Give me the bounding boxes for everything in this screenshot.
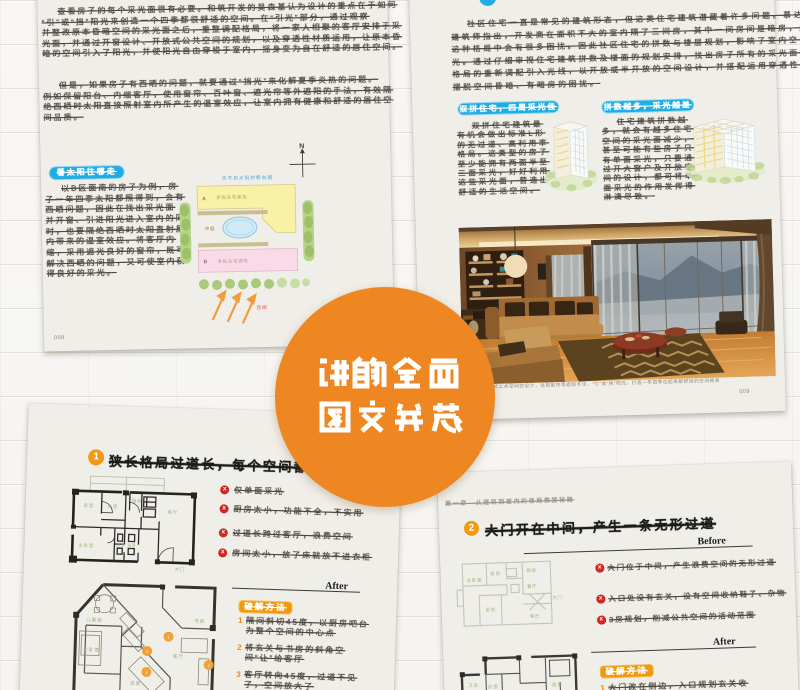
svg-text:卧室: 卧室 bbox=[488, 683, 499, 690]
svg-text:餐厅: 餐厅 bbox=[527, 583, 538, 590]
svg-text:N: N bbox=[299, 143, 304, 150]
svg-text:客厅: 客厅 bbox=[167, 509, 178, 516]
svg-text:西晒: 西晒 bbox=[256, 305, 267, 311]
svg-text:厨房: 厨房 bbox=[526, 567, 537, 574]
svg-text:浴室: 浴室 bbox=[130, 680, 141, 687]
svg-text:卧室: 卧室 bbox=[84, 502, 95, 509]
svg-text:厨房: 厨房 bbox=[132, 497, 143, 504]
svg-text:大门: 大门 bbox=[175, 566, 186, 573]
svg-text:大门: 大门 bbox=[552, 594, 563, 601]
svg-text:卧房: 卧房 bbox=[486, 606, 497, 613]
svg-text:卧室: 卧室 bbox=[107, 503, 118, 510]
svg-text:浴室: 浴室 bbox=[127, 542, 136, 547]
svg-text:客厅: 客厅 bbox=[530, 613, 541, 620]
svg-text:卫浴: 卫浴 bbox=[468, 682, 479, 689]
svg-text:浴室: 浴室 bbox=[116, 542, 125, 547]
svg-text:买不到太阳的朝向图: 买不到太阳的朝向图 bbox=[222, 174, 273, 182]
svg-text:主卧室: 主卧室 bbox=[78, 542, 94, 549]
svg-text:A: A bbox=[202, 196, 206, 202]
svg-text:B: B bbox=[203, 259, 207, 265]
svg-text:儿童房: 儿童房 bbox=[86, 616, 103, 624]
svg-text:厨房: 厨房 bbox=[552, 681, 563, 688]
svg-text:客厅: 客厅 bbox=[173, 653, 184, 660]
svg-text:中庭: 中庭 bbox=[205, 225, 216, 232]
svg-text:卧房: 卧房 bbox=[490, 570, 501, 577]
svg-text:主卧室: 主卧室 bbox=[467, 576, 483, 584]
svg-text:书房: 书房 bbox=[194, 617, 205, 624]
